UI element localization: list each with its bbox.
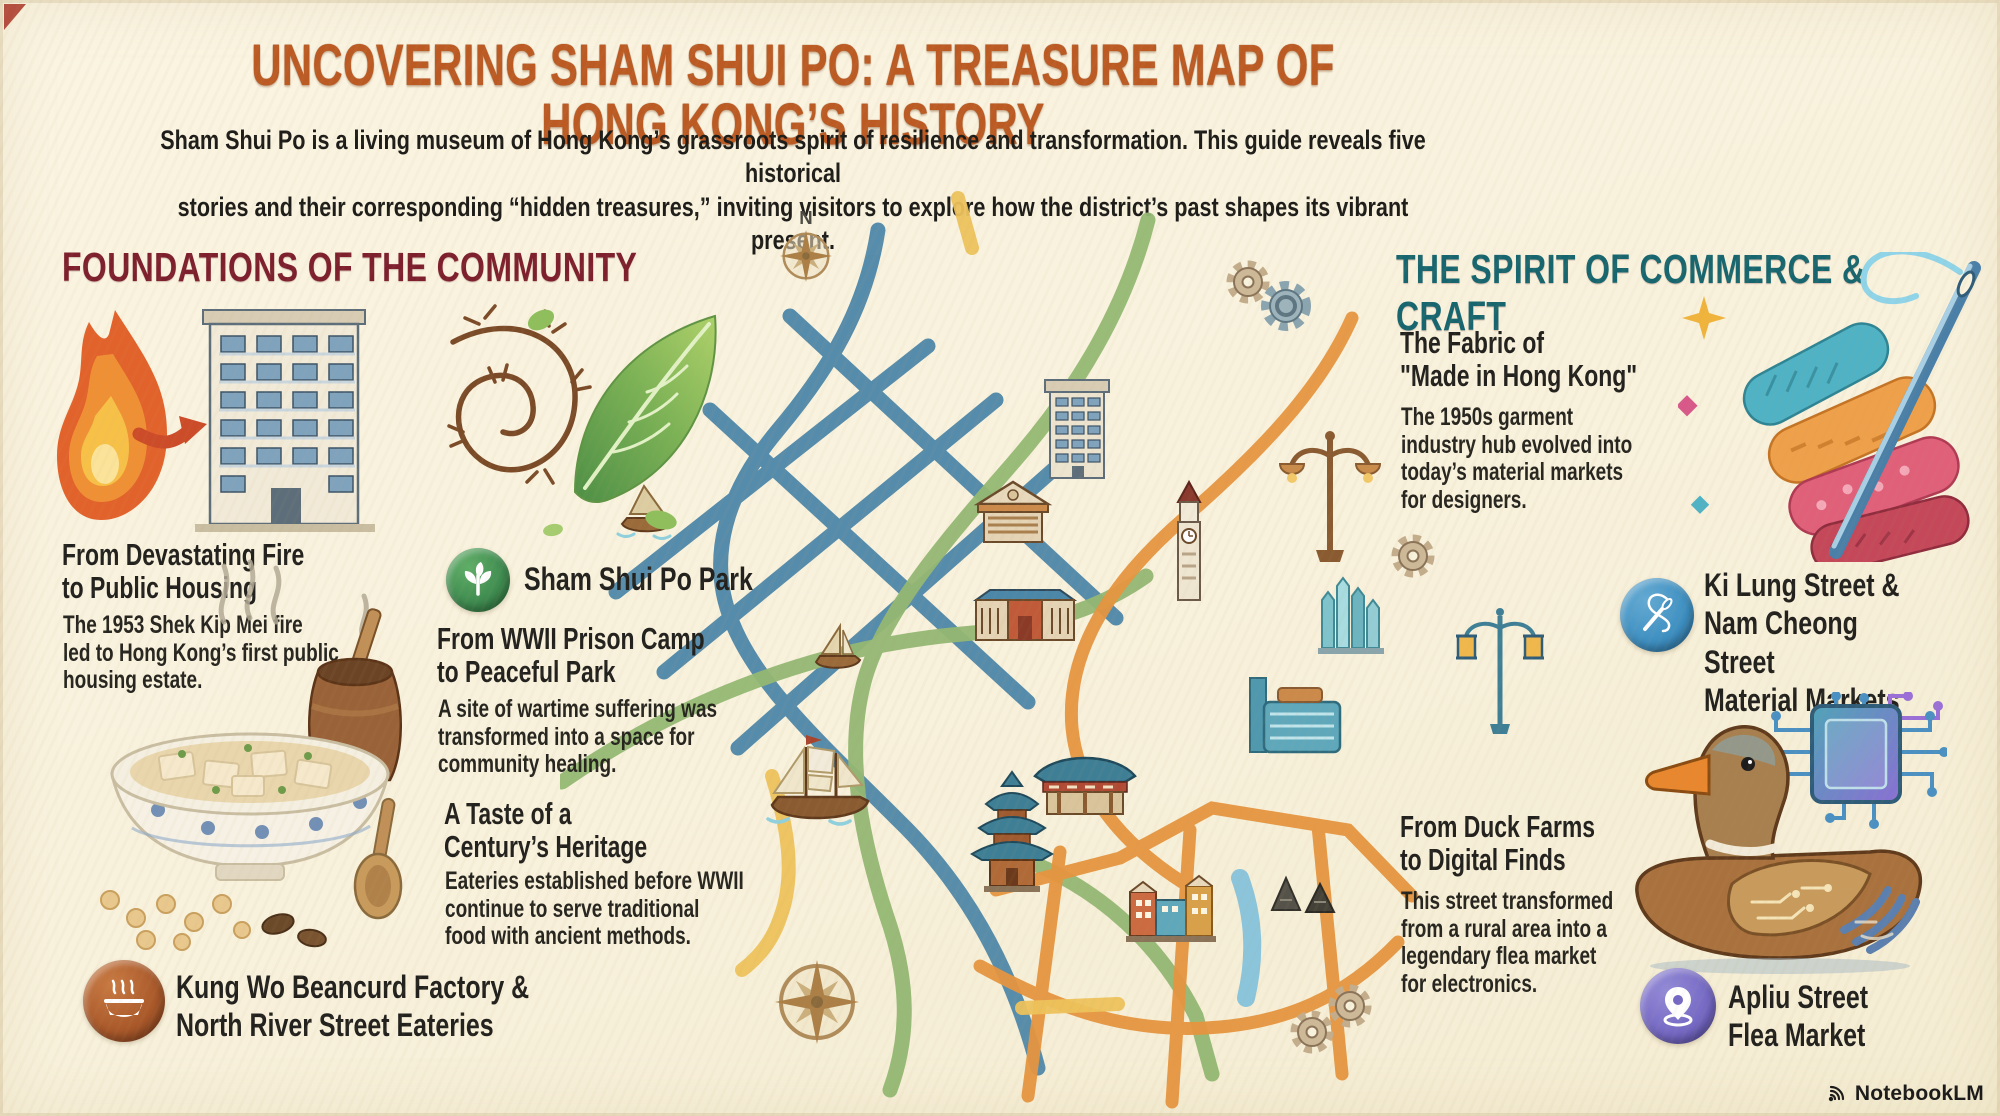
soup-bowl-icon [112,734,388,880]
duck-block-title: From Duck Farms to Digital Finds [1400,810,1595,877]
needle-thread-icon [1634,592,1680,638]
gear-icon [1267,287,1305,325]
compass-rose-icon [775,960,860,1045]
clock-tower-icon [1178,482,1200,600]
street-lamp-icon [1280,431,1380,562]
beancurd-food-illustration [82,552,432,952]
materials-badge [1620,578,1694,652]
thread-icon [1864,252,1960,301]
glass-towers-icon [1318,578,1384,654]
apartment-building-icon [1045,380,1109,478]
wire-to-leaf-illustration [425,280,740,545]
location-pin-icon [1654,982,1702,1030]
park-block-title: From WWII Prison Camp to Peaceful Park [437,622,705,689]
gear-icon [1296,1016,1328,1048]
footer: NotebookLM [1824,1082,1984,1106]
lantern-lamp-icon [1456,608,1544,734]
plant-icon [459,561,497,599]
microchip-icon [1812,706,1900,802]
gear-icon [1397,540,1429,572]
shophouses-icon [1126,876,1216,942]
park-block-body: A site of wartime suffering was transfor… [438,696,717,779]
infographic-poster: UNCOVERING SHAM SHUI PO: A TREASURE MAP … [0,0,2000,1116]
gear-icon [1232,266,1264,298]
eateries-badge-label: Kung Wo Beancurd Factory & North River S… [176,968,529,1045]
duck-block-body: This street transformed from a rural are… [1401,888,1613,998]
soybeans-icon [101,891,327,950]
river [1240,878,1252,998]
notebooklm-logo-icon [1824,1082,1848,1106]
eateries-badge [83,960,165,1042]
flea-market-badge [1640,968,1716,1044]
steam-icon [221,562,366,640]
flea-badge-label: Apliu Street Flea Market [1728,978,1868,1055]
apartment-block-illustration [195,310,375,532]
barbed-wire-icon [449,306,590,483]
park-badge-label: Sham Shui Po Park [524,560,753,598]
brand-label: NotebookLM [1855,1082,1984,1106]
taste-block-body: Eateries established before WWII continu… [445,868,744,951]
fabric-block-title: The Fabric of "Made in Hong Kong" [1400,326,1637,393]
compass-rose-icon: N [780,207,833,283]
fabric-block-body: The 1950s garment industry hub evolved i… [1401,404,1632,514]
taste-block-title: A Taste of a Century’s Heritage [444,797,647,864]
fire-icon [57,310,167,520]
corner-accent [4,4,26,30]
temple-icon [1035,758,1135,814]
modern-building-icon [1250,678,1340,752]
steaming-bowl-icon [99,976,149,1026]
duck-electronics-illustration [1612,692,1947,977]
compass-north-label: N [799,207,812,228]
fire-to-housing-illustration [55,292,390,547]
needle-fabric-illustration [1678,252,1990,562]
park-badge [446,548,510,612]
leaf-icon [524,305,715,537]
sparkle-icon [1678,296,1726,514]
market-hall-icon [976,590,1074,640]
